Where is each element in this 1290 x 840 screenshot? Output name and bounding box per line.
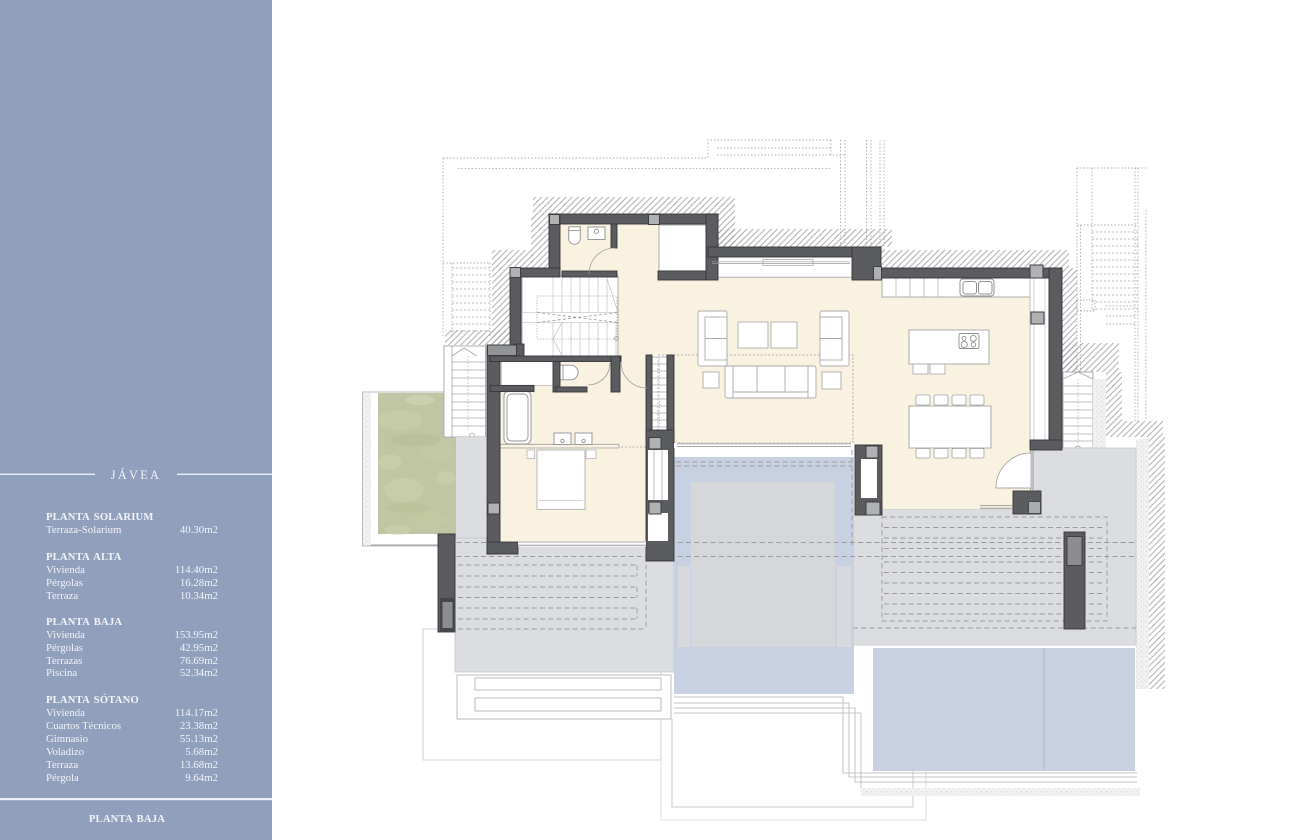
svg-text:13.68m2: 13.68m2 bbox=[180, 759, 218, 771]
svg-text:23.38m2: 23.38m2 bbox=[180, 720, 218, 732]
svg-text:Pérgolas: Pérgolas bbox=[46, 642, 83, 654]
svg-text:PLANTA BAJA: PLANTA BAJA bbox=[46, 617, 122, 628]
svg-text:42.95m2: 42.95m2 bbox=[180, 642, 218, 654]
svg-text:10.34m2: 10.34m2 bbox=[180, 590, 218, 602]
svg-text:PLANTA SÓTANO: PLANTA SÓTANO bbox=[46, 694, 139, 706]
svg-text:Vivienda: Vivienda bbox=[46, 564, 85, 576]
svg-text:114.17m2: 114.17m2 bbox=[175, 707, 218, 719]
svg-text:Voladizo: Voladizo bbox=[46, 746, 84, 758]
svg-text:Vivienda: Vivienda bbox=[46, 629, 85, 641]
svg-text:Cuartos Técnicos: Cuartos Técnicos bbox=[46, 720, 121, 732]
svg-text:JÁVEA: JÁVEA bbox=[111, 468, 162, 482]
svg-text:55.13m2: 55.13m2 bbox=[180, 733, 218, 745]
svg-text:Gimnasio: Gimnasio bbox=[46, 733, 88, 745]
svg-text:Pérgolas: Pérgolas bbox=[46, 577, 83, 589]
svg-text:153.95m2: 153.95m2 bbox=[175, 629, 219, 641]
svg-text:5.68m2: 5.68m2 bbox=[185, 746, 218, 758]
svg-text:Piscina: Piscina bbox=[46, 667, 77, 679]
svg-text:Terraza: Terraza bbox=[46, 759, 78, 771]
svg-text:Terraza: Terraza bbox=[46, 590, 78, 602]
svg-text:40.30m2: 40.30m2 bbox=[180, 524, 218, 536]
svg-text:114.40m2: 114.40m2 bbox=[175, 564, 218, 576]
svg-text:PLANTA ALTA: PLANTA ALTA bbox=[46, 552, 122, 563]
svg-text:PLANTA BAJA: PLANTA BAJA bbox=[89, 814, 165, 825]
svg-text:76.69m2: 76.69m2 bbox=[180, 655, 218, 667]
svg-text:Terrazas: Terrazas bbox=[46, 655, 82, 667]
svg-text:Pérgola: Pérgola bbox=[46, 772, 79, 784]
svg-text:9.64m2: 9.64m2 bbox=[185, 772, 218, 784]
svg-text:52.34m2: 52.34m2 bbox=[180, 667, 218, 679]
svg-text:Vivienda: Vivienda bbox=[46, 707, 85, 719]
svg-text:16.28m2: 16.28m2 bbox=[180, 577, 218, 589]
svg-text:Terraza-Solarium: Terraza-Solarium bbox=[46, 524, 122, 536]
svg-text:PLANTA SOLARIUM: PLANTA SOLARIUM bbox=[46, 512, 154, 523]
